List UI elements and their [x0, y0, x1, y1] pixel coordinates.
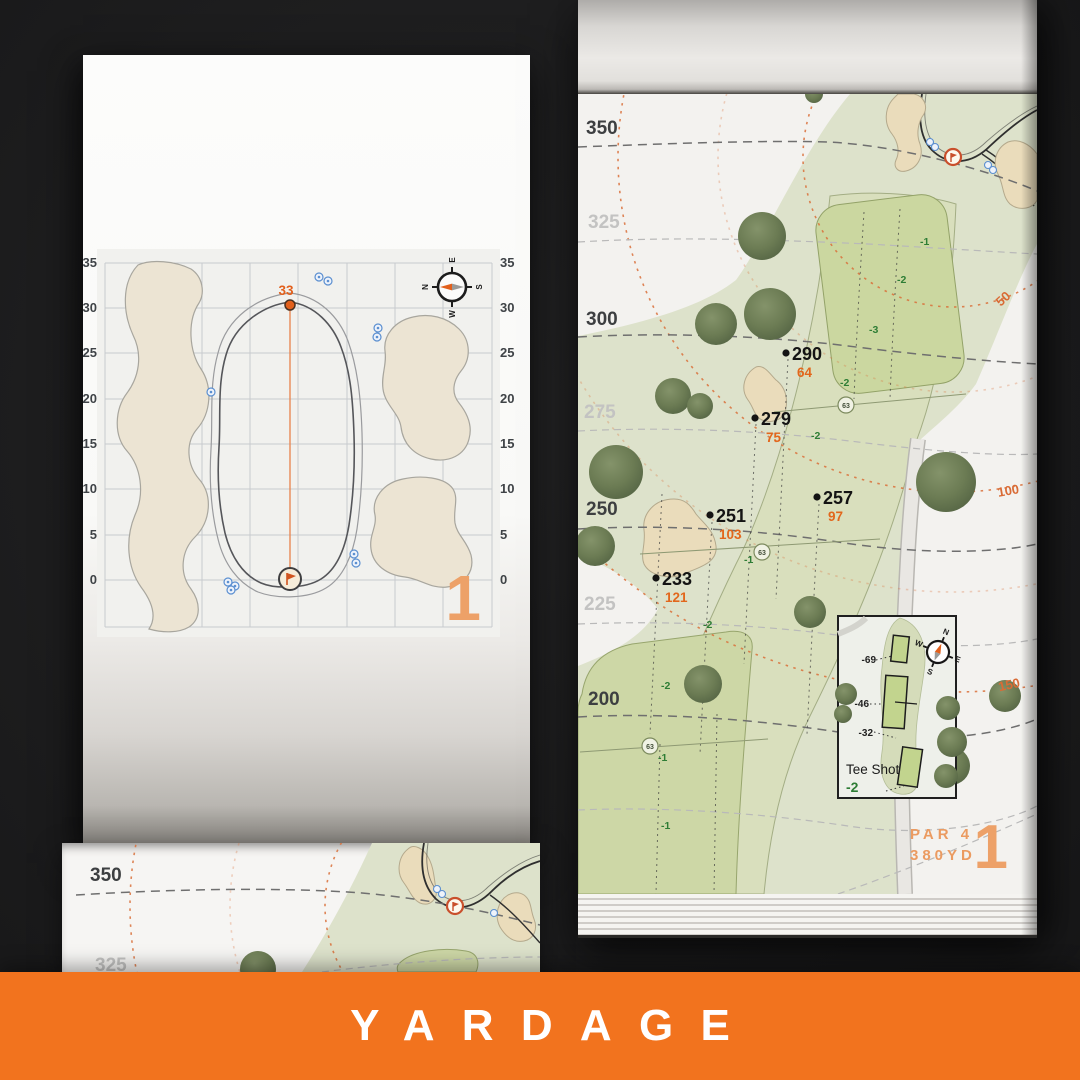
axis-labels-left: 35 30 25 20 15 10 5 0 — [83, 255, 97, 587]
scale-label: 325 — [95, 955, 127, 972]
tee-yardage: -32 — [859, 728, 874, 739]
axis-tick: 35 — [500, 255, 514, 270]
tee-shot-inset: -69 -46 -32 N E — [834, 616, 970, 798]
tree — [240, 951, 276, 972]
scale-label: 350 — [586, 118, 618, 139]
scale-label: 325 — [588, 212, 620, 233]
svg-text:100: 100 — [996, 481, 1020, 500]
axis-tick: 30 — [83, 300, 97, 315]
tee-yardage: -69 — [862, 655, 877, 666]
flag-marker — [945, 149, 961, 165]
scale-label: 225 — [584, 594, 616, 615]
left-booklet-page: 35 30 25 20 15 10 5 0 35 30 25 20 15 10 … — [83, 55, 530, 847]
compass-s: S — [475, 284, 484, 290]
hole-map: 63 63 63 350 325 300 275 250 225 200 — [578, 94, 1037, 894]
tee-shot-title: Tee Shot — [846, 762, 900, 777]
axis-tick: 25 — [83, 345, 97, 360]
page-number: 1 — [445, 562, 481, 634]
page-curl — [578, 0, 1037, 94]
axis-tick: 10 — [500, 481, 514, 496]
svg-text:63: 63 — [646, 744, 654, 751]
svg-text:-1: -1 — [661, 820, 670, 832]
tee-yardage: -46 — [855, 699, 870, 710]
axis-tick: 5 — [500, 527, 507, 542]
axis-labels-right: 35 30 25 20 15 10 5 0 — [500, 255, 514, 587]
right-booklet-page: 63 63 63 350 325 300 275 250 225 200 — [578, 0, 1037, 935]
scale-label: 350 — [90, 865, 122, 886]
axis-tick: 35 — [83, 255, 97, 270]
svg-text:-1: -1 — [744, 554, 753, 566]
svg-text:251: 251 — [716, 506, 746, 526]
svg-text:-2: -2 — [811, 430, 820, 442]
yardage-banner: YARDAGE — [0, 972, 1080, 1080]
svg-text:-2: -2 — [840, 377, 849, 389]
svg-text:-1: -1 — [658, 752, 667, 764]
flag-marker — [447, 898, 463, 914]
svg-text:103: 103 — [719, 527, 742, 542]
compass-w: W — [448, 310, 457, 318]
par-label: PAR 4 — [910, 826, 973, 843]
tee-shot-slope: -2 — [846, 779, 859, 795]
banner-title: YARDAGE — [323, 1004, 757, 1048]
compass-e: E — [448, 257, 457, 263]
axis-tick: 20 — [500, 391, 514, 406]
axis-tick: 0 — [90, 572, 97, 587]
axis-tick: 0 — [500, 572, 507, 587]
svg-text:97: 97 — [828, 509, 843, 524]
svg-text:290: 290 — [792, 344, 822, 364]
scale-label: 250 — [586, 499, 618, 520]
svg-text:-1: -1 — [920, 236, 929, 248]
page-number: 1 — [974, 813, 1008, 882]
yardage-book-poster: 35 30 25 20 15 10 5 0 35 30 25 20 15 10 … — [0, 0, 1080, 1080]
axis-tick: 10 — [83, 481, 97, 496]
svg-text:64: 64 — [797, 365, 813, 380]
svg-text:257: 257 — [823, 488, 853, 508]
svg-text:63: 63 — [842, 403, 850, 410]
scale-label: 200 — [588, 689, 620, 710]
pin-dot — [285, 300, 295, 310]
svg-text:-2: -2 — [703, 619, 712, 631]
svg-text:121: 121 — [665, 590, 688, 605]
pin-distance-label: 33 — [278, 283, 294, 298]
compass-n: N — [421, 284, 430, 290]
page-stack-edge — [578, 894, 1037, 938]
axis-tick: 15 — [500, 436, 514, 451]
hole-distance-label: 380YD — [910, 847, 976, 864]
axis-tick: 25 — [500, 345, 514, 360]
green-detail-map: 35 30 25 20 15 10 5 0 35 30 25 20 15 10 … — [83, 55, 530, 845]
svg-text:-2: -2 — [897, 274, 906, 286]
svg-text:-3: -3 — [869, 324, 878, 336]
scale-label: 300 — [586, 309, 618, 330]
svg-text:75: 75 — [766, 430, 782, 445]
axis-tick: 20 — [83, 391, 97, 406]
svg-text:279: 279 — [761, 409, 791, 429]
arc-labels: 50 100 150 — [993, 288, 1022, 694]
partial-hole-map: 350 325 — [62, 843, 540, 972]
svg-text:63: 63 — [758, 550, 766, 557]
bottom-left-partial-page: 350 325 — [62, 843, 540, 972]
flag-marker — [279, 568, 301, 590]
axis-tick: 30 — [500, 300, 514, 315]
axis-tick: 15 — [83, 436, 97, 451]
landing-zone — [813, 192, 967, 397]
scale-label: 275 — [584, 402, 616, 423]
svg-text:233: 233 — [662, 569, 692, 589]
hole-map-page: 63 63 63 350 325 300 275 250 225 200 — [578, 94, 1037, 894]
svg-text:-2: -2 — [661, 680, 670, 692]
axis-tick: 5 — [90, 527, 97, 542]
